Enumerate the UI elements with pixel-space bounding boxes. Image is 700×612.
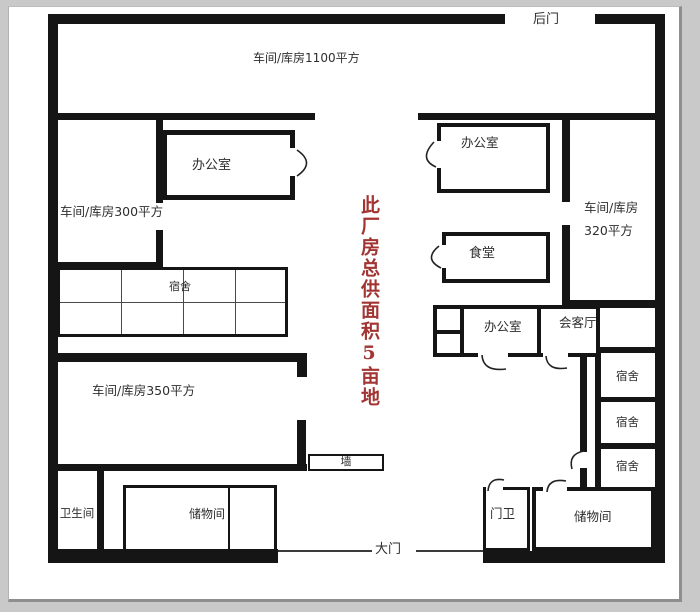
- wall-toilet-right: [97, 471, 104, 551]
- back-door-label: 后门: [533, 13, 559, 28]
- wall-dorm-col-left: [595, 347, 601, 487]
- block-divider-left-cell: [437, 330, 461, 334]
- toilet-label: 卫生间: [56, 507, 98, 520]
- office-top-left-label: 办公室: [192, 159, 231, 174]
- room-office-top-right: [437, 123, 550, 193]
- office-center-label: 办公室: [484, 320, 522, 334]
- wall-corridor-upper: [580, 348, 587, 452]
- workshop-320-line2: 320平方: [584, 219, 638, 242]
- door-gap-office-top-right: [435, 141, 443, 168]
- workshop-350-label: 车间/库房350平方: [92, 384, 195, 398]
- wall-right: [655, 20, 665, 563]
- workshop-320-label: 车间/库房 320平方: [584, 196, 638, 242]
- workshop-320-line1: 车间/库房: [584, 196, 638, 219]
- workshop-300-label: 车间/库房300平方: [60, 205, 163, 219]
- storage-left-divider: [228, 488, 230, 549]
- dorm-grid-label: 宿舍: [169, 281, 191, 294]
- wall-350-bottom: [48, 464, 307, 471]
- wall-mid-horizontal-left: [48, 113, 315, 120]
- wall-dorm-col-top: [595, 347, 657, 353]
- wall-bottom-right-segment: [483, 551, 665, 563]
- storage-right-label: 储物间: [574, 510, 612, 524]
- dorm-3-label: 宿舍: [616, 460, 639, 473]
- wall-dorm-divider-2: [595, 443, 657, 449]
- main-gate-line-right: [416, 550, 483, 552]
- block-divider-reception: [537, 309, 541, 353]
- door-gap-block-1: [478, 351, 508, 359]
- office-top-right-label: 办公室: [461, 136, 499, 150]
- wall-marker-label: 墙: [308, 456, 384, 469]
- red-area-note: 此厂房总供面积5亩地: [356, 195, 383, 417]
- wall-top-left-segment: [48, 14, 505, 24]
- wall-mid-horizontal-right: [418, 113, 655, 120]
- door-gap-block-2: [543, 351, 568, 359]
- floor-plan-canvas: 后门 车间/库房1100平方 车间/库房300平方 办公室 办公室 食堂 车间/…: [0, 0, 700, 612]
- workshop-1100-label: 车间/库房1100平方: [253, 52, 360, 66]
- door-gap-guard: [486, 485, 503, 492]
- room-canteen: [442, 232, 550, 283]
- main-gate-line-left: [278, 550, 372, 552]
- dorm-grid-row-line: [60, 302, 285, 303]
- wall-vert-350-right: [297, 420, 306, 470]
- wall-central-vert-lower: [562, 225, 570, 303]
- wall-corner-stub: [297, 353, 307, 377]
- door-gap-office-top-left: [288, 148, 297, 176]
- dorm-1-label: 宿舍: [616, 370, 639, 383]
- guard-room-label: 门卫: [490, 507, 515, 521]
- dorm-2-label: 宿舍: [616, 416, 639, 429]
- wall-central-vert-upper: [562, 115, 570, 202]
- wall-below-dorm-grid: [48, 353, 307, 362]
- storage-left-label: 储物间: [189, 508, 225, 522]
- door-gap-storage-right: [543, 485, 567, 493]
- wall-dorm-divider-1: [595, 397, 657, 402]
- main-gate-label: 大门: [375, 543, 401, 558]
- reception-label: 会客厅: [559, 316, 597, 330]
- canteen-label: 食堂: [469, 247, 495, 262]
- room-dorm-grid: [57, 267, 288, 337]
- door-gap-canteen: [440, 245, 448, 268]
